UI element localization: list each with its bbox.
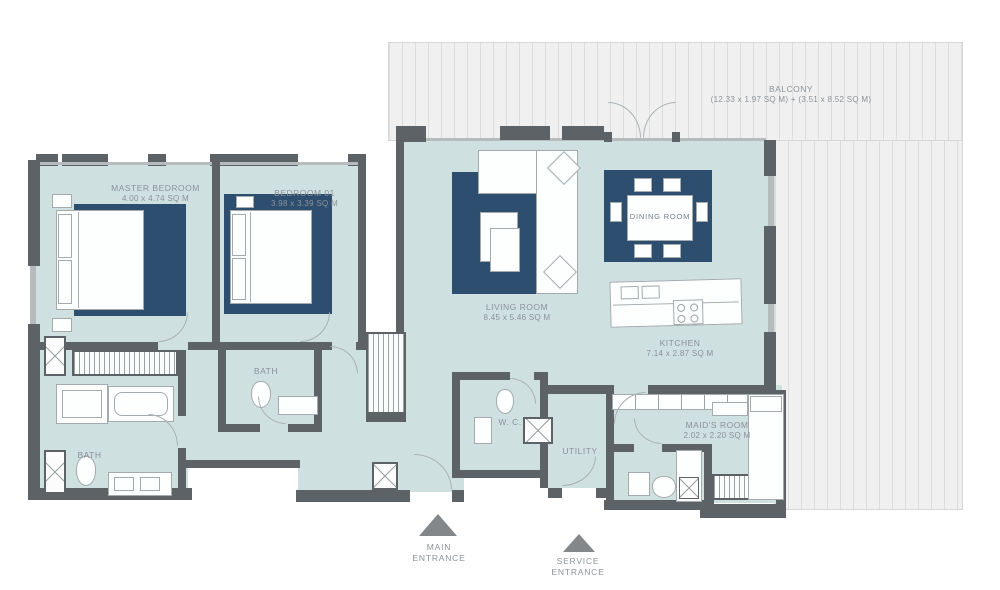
wall-segment xyxy=(314,350,322,430)
wall-segment xyxy=(178,350,186,416)
wall-segment xyxy=(28,160,40,266)
wall-segment xyxy=(548,488,562,498)
bedroom01-label: BEDROOM 01 3.98 x 3.39 SQ M xyxy=(232,188,377,210)
dining-chair xyxy=(663,178,681,192)
tub-basin xyxy=(114,392,168,416)
wall-segment xyxy=(612,444,634,452)
closet-xbox xyxy=(44,336,66,376)
wall-segment xyxy=(452,372,510,380)
main-entrance-label: MAIN ENTRANCE xyxy=(397,542,481,565)
wall-segment xyxy=(704,450,712,506)
wall-segment xyxy=(452,375,460,478)
dining-chair xyxy=(663,244,681,258)
wall-segment xyxy=(396,126,426,142)
wall-segment xyxy=(366,414,406,422)
wardrobe-hatch xyxy=(72,350,178,376)
exterior-notch xyxy=(464,478,540,506)
window-line xyxy=(768,176,774,226)
shower xyxy=(676,450,702,502)
sink-basin xyxy=(621,286,639,299)
wall-segment xyxy=(562,126,604,140)
wall-segment xyxy=(218,424,260,432)
wardrobe-hatch xyxy=(366,332,406,414)
bed-line xyxy=(78,212,79,308)
pillow xyxy=(232,214,246,256)
utility-label: UTILITY xyxy=(549,446,611,457)
main-entrance-arrow-icon xyxy=(419,514,457,536)
double-sink xyxy=(108,472,172,496)
pillow xyxy=(750,396,782,412)
wall-segment xyxy=(288,424,322,432)
wall-segment xyxy=(296,490,410,502)
bathtub xyxy=(108,386,174,422)
service-entrance-arrow-icon xyxy=(563,534,595,552)
exterior-notch xyxy=(188,468,298,494)
pillow xyxy=(58,214,72,258)
wall-segment xyxy=(396,140,404,334)
bed-line xyxy=(250,212,251,302)
dining-room-label: DINING ROOM xyxy=(602,212,718,221)
wall-segment xyxy=(178,448,186,490)
shelf xyxy=(712,402,748,416)
toilet xyxy=(652,476,676,498)
closet-xbox xyxy=(372,462,398,490)
living-room-label: LIVING ROOM 8.45 x 5.46 SQ M xyxy=(442,302,592,324)
wall-segment xyxy=(596,488,608,498)
nightstand xyxy=(52,194,72,208)
balcony-right-deck xyxy=(774,140,963,510)
wall-segment xyxy=(764,226,776,304)
bath-label: BATH xyxy=(243,366,289,377)
wall-segment xyxy=(186,460,300,468)
wall-segment xyxy=(500,126,550,140)
pillow xyxy=(58,260,72,304)
wall-segment xyxy=(28,348,40,494)
balcony-label: BALCONY (12.33 x 1.97 SQ M) + (3.51 x 8.… xyxy=(642,84,940,106)
bath-label: BATH xyxy=(62,450,117,461)
wall-segment xyxy=(648,385,776,394)
sink xyxy=(628,472,650,496)
nightstand xyxy=(52,318,72,332)
sink-basin xyxy=(114,477,134,491)
pillow xyxy=(232,258,246,300)
wall-segment xyxy=(188,342,214,350)
wall-segment xyxy=(700,504,786,518)
wall-segment xyxy=(218,350,226,430)
maids-room-label: MAID'S ROOM 2.02 x 2.20 SQ M xyxy=(638,420,796,442)
sink-basin xyxy=(140,477,160,491)
window-line xyxy=(30,266,36,324)
kitchen-counter xyxy=(609,278,742,327)
kitchen-label: KITCHEN 7.14 x 2.87 SQ M xyxy=(600,338,760,360)
coffee-table xyxy=(490,228,520,272)
wc-label: W. C. xyxy=(490,417,530,428)
service-entrance-label: SERVICE ENTRANCE xyxy=(536,556,620,579)
wall-segment xyxy=(546,385,614,394)
master-bedroom-label: MASTER BEDROOM 4.00 x 4.74 SQ M xyxy=(78,183,233,205)
dining-chair xyxy=(634,244,652,258)
dining-chair xyxy=(634,178,652,192)
wall-segment xyxy=(356,342,366,350)
sink-basin xyxy=(642,285,660,298)
wall-segment xyxy=(764,140,776,176)
window-line xyxy=(36,162,366,165)
window-line xyxy=(768,304,774,332)
shower xyxy=(56,384,108,424)
washer-hatch xyxy=(712,474,750,500)
wall-segment xyxy=(452,470,548,478)
floor-plan: DINING ROOM xyxy=(0,0,1000,590)
shower-tray xyxy=(679,477,699,499)
shower-tray xyxy=(62,390,102,418)
wall-segment xyxy=(212,342,332,350)
wall-segment xyxy=(452,490,464,502)
